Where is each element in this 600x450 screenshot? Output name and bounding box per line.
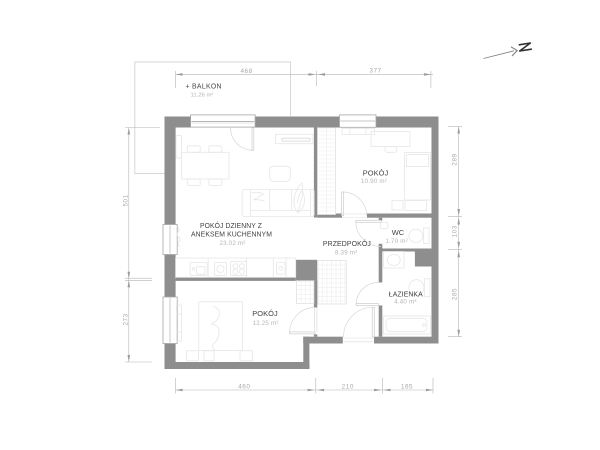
svg-text:468: 468 (240, 68, 252, 75)
svg-text:460: 460 (238, 384, 250, 391)
svg-text:501: 501 (122, 194, 129, 206)
svg-text:285: 285 (452, 288, 459, 300)
svg-text:12.25 m²: 12.25 m² (253, 320, 279, 327)
svg-text:ŁAZIENKA: ŁAZIENKA (389, 289, 423, 298)
svg-text:4.40 m²: 4.40 m² (394, 298, 416, 305)
svg-text:273: 273 (122, 313, 129, 325)
svg-text:289: 289 (452, 153, 459, 165)
svg-text:165: 165 (401, 384, 413, 391)
svg-text:1.70 m²: 1.70 m² (386, 238, 408, 245)
svg-text:PRZEDPOKÓJ: PRZEDPOKÓJ (323, 239, 371, 248)
svg-text:23.02 m²: 23.02 m² (219, 240, 245, 247)
svg-text:+ BALKON: + BALKON (186, 84, 222, 91)
svg-text:POKÓJ: POKÓJ (363, 168, 389, 177)
svg-text:103: 103 (452, 225, 459, 237)
svg-text:8.39 m²: 8.39 m² (335, 250, 357, 257)
svg-text:ANEKSEM KUCHENNYM: ANEKSEM KUCHENNYM (191, 230, 272, 239)
svg-text:WC: WC (392, 228, 405, 237)
svg-text:210: 210 (342, 384, 354, 391)
svg-text:377: 377 (369, 68, 381, 75)
svg-text:10.90 m²: 10.90 m² (361, 178, 387, 185)
svg-text:POKÓJ: POKÓJ (252, 309, 278, 318)
svg-text:11.26 m²: 11.26 m² (191, 92, 214, 98)
